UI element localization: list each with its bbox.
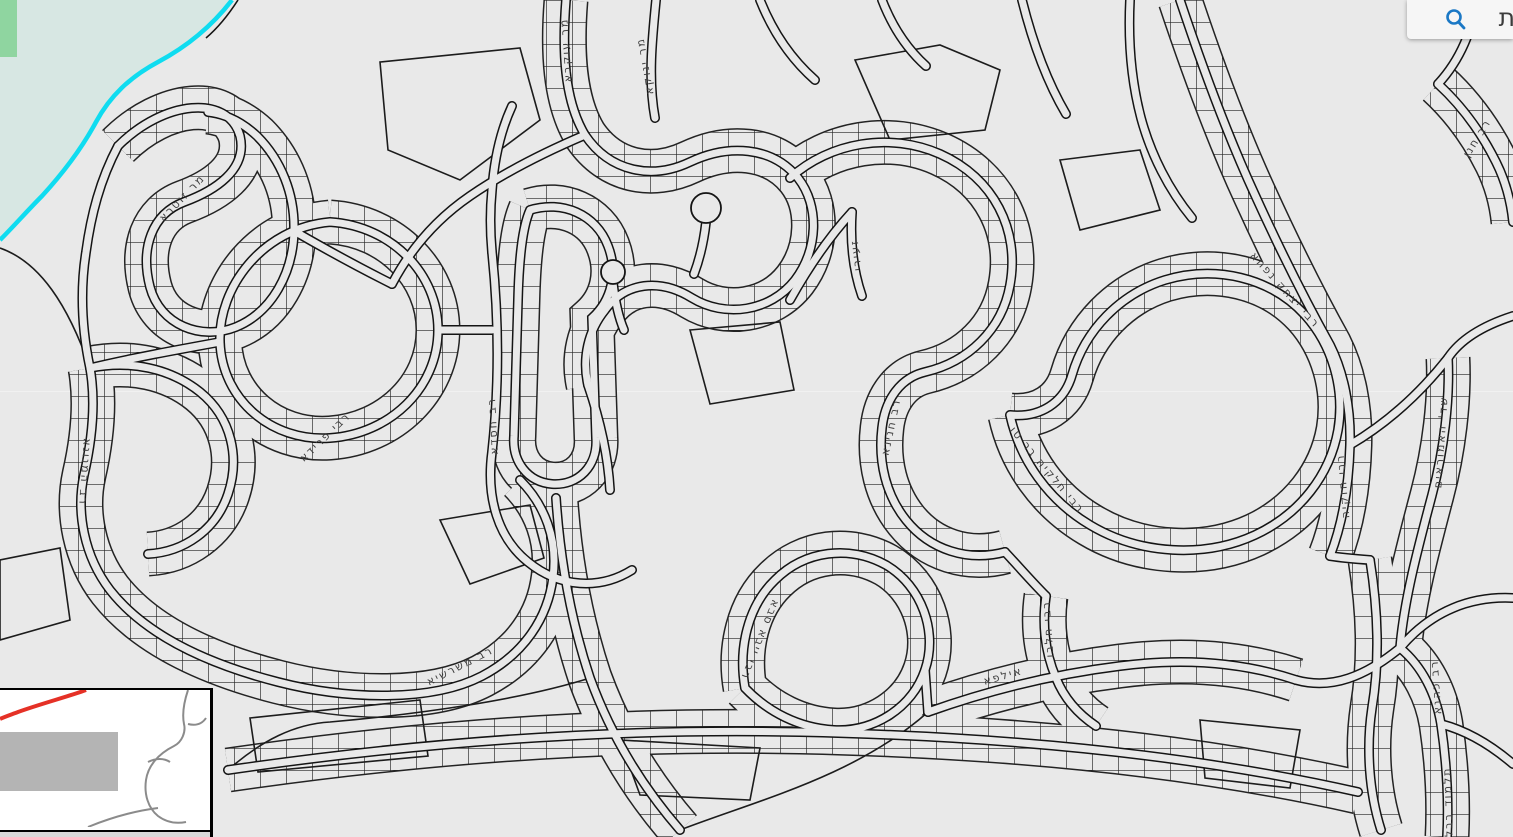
search-query-text: ת: [1499, 3, 1513, 32]
cul-de-sac-bulb: [601, 260, 625, 284]
park-area: [0, 0, 17, 57]
overview-inset-map[interactable]: [0, 688, 213, 837]
search-bar[interactable]: ת: [1407, 0, 1513, 39]
cul-de-sac-bulb: [691, 193, 721, 223]
search-icon[interactable]: [1443, 7, 1469, 33]
map-canvas[interactable]: [0, 0, 1513, 837]
inset-bottom-strip: [0, 830, 210, 837]
map-application: מר עוקבאמר ינוקאמר זוטרארב המנונארבי פרי…: [0, 0, 1513, 837]
inset-built-area: [0, 732, 118, 791]
